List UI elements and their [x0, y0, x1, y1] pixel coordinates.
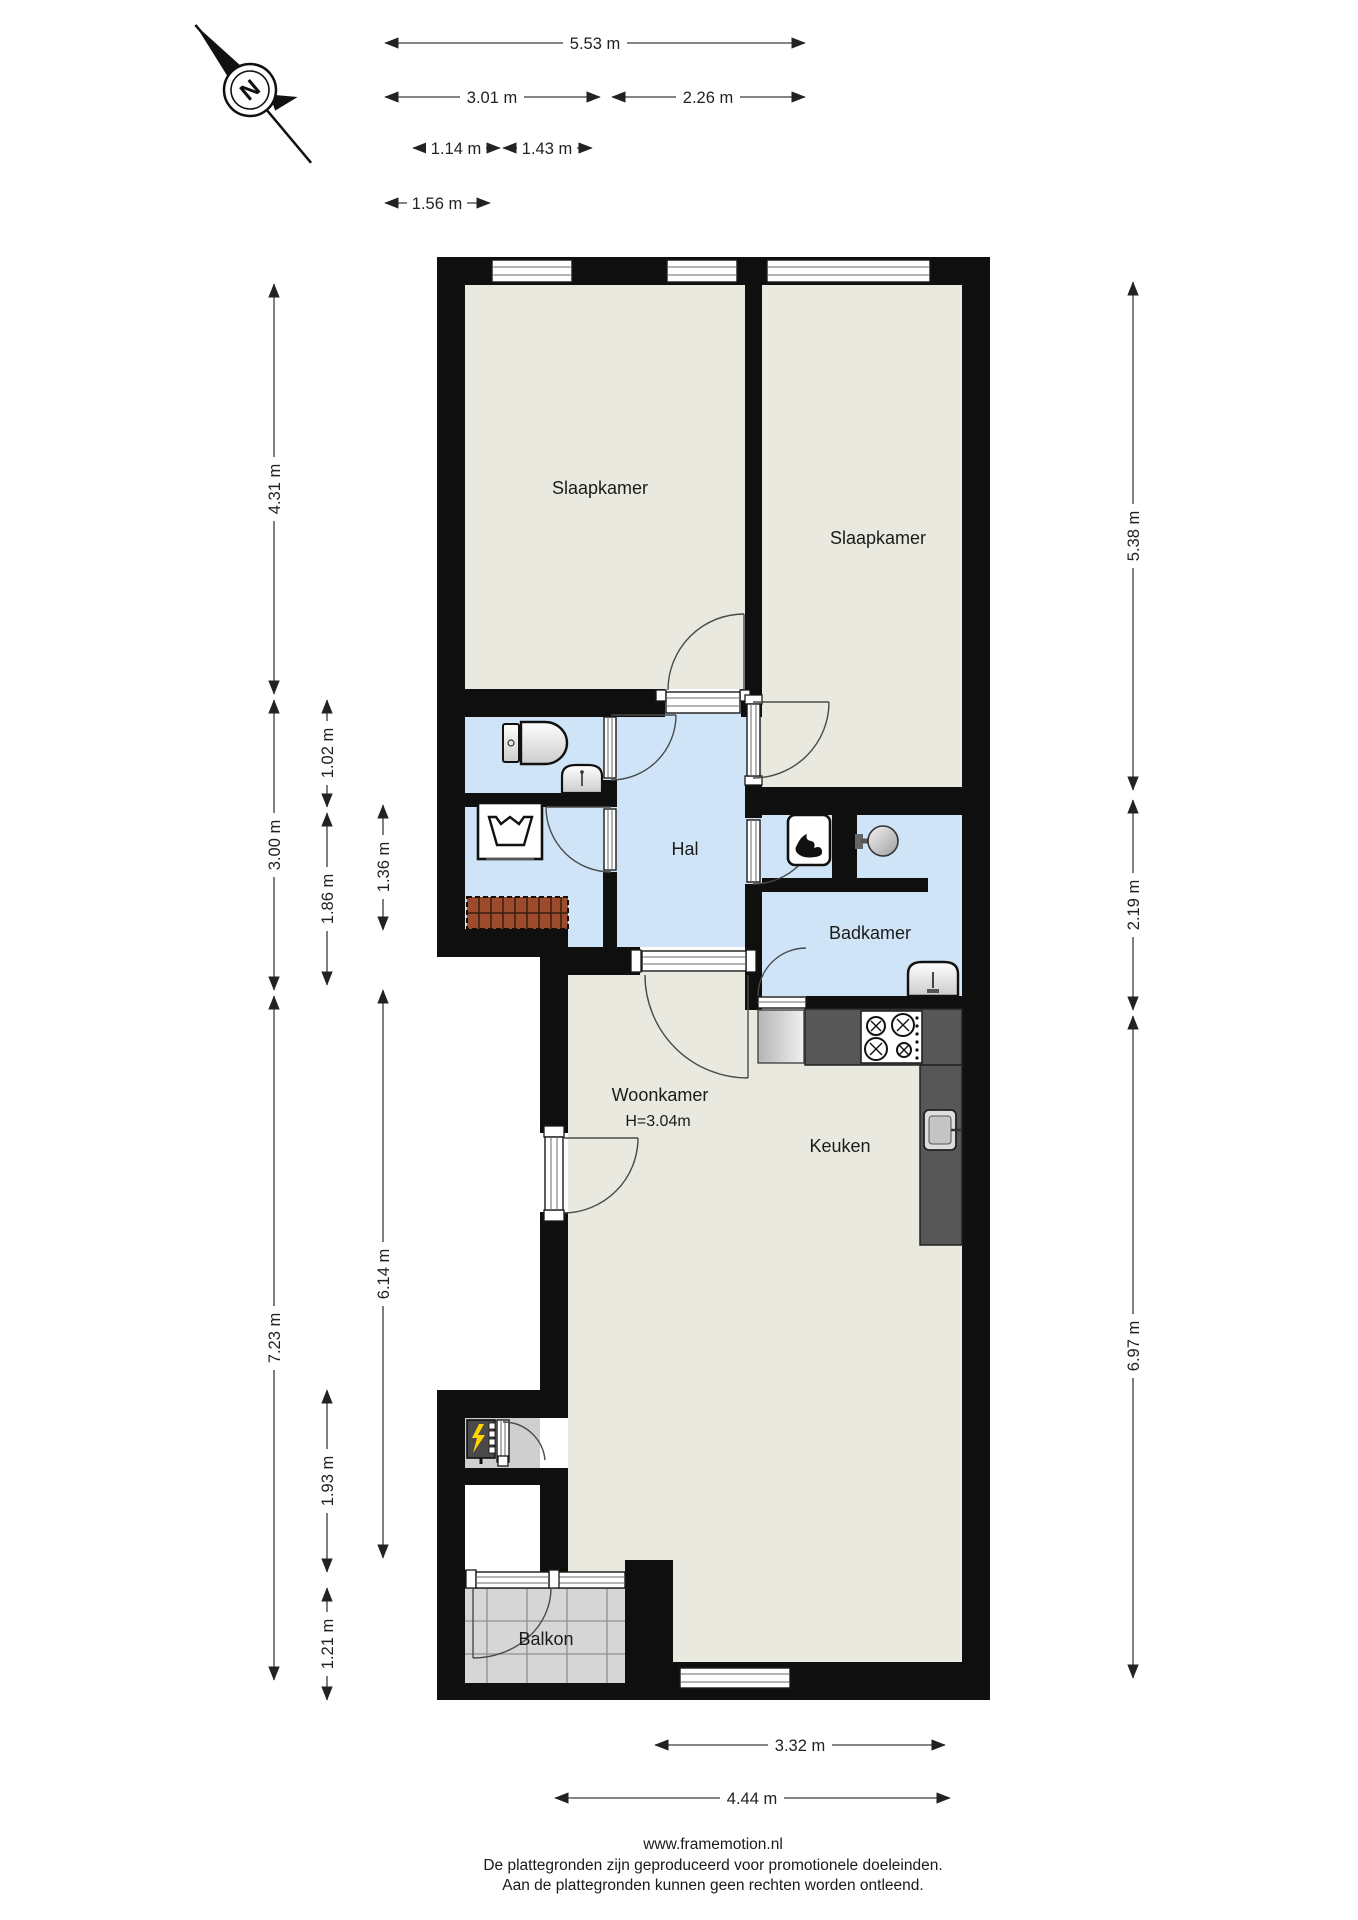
footer-site: www.framemotion.nl [642, 1836, 783, 1853]
svg-text:5.38 m: 5.38 m [1125, 511, 1143, 561]
dim-697: 6.97 m [1123, 1016, 1143, 1678]
dim-156: 1.56 m [385, 193, 490, 213]
compass-icon: N [175, 4, 335, 179]
footer: www.framemotion.nl De plattegronden zijn… [483, 1836, 942, 1894]
dim-186: 1.86 m [317, 813, 337, 985]
hall-floor [603, 702, 762, 947]
svg-text:1.14 m: 1.14 m [431, 140, 481, 158]
dimensions-left: 4.31 m 3.00 m 7.23 m 1.02 m 1.86 m 1.93 … [264, 284, 393, 1700]
svg-text:1.56 m: 1.56 m [412, 195, 462, 213]
bedroom2-label: Slaapkamer [830, 528, 926, 548]
svg-text:2.19 m: 2.19 m [1125, 880, 1143, 930]
floorplan-drawing: Slaapkamer Slaapkamer Hal Badkamer Keuke… [0, 0, 1358, 1920]
living-label: Woonkamer [612, 1085, 709, 1105]
footer-disclaimer-2: Aan de plattegronden kunnen geen rechten… [502, 1877, 923, 1894]
dim-538: 5.38 m [1123, 282, 1143, 790]
dim-143: 1.43 m [503, 138, 592, 158]
window-top-2 [667, 260, 737, 282]
kitchen-sink-icon [924, 1110, 962, 1150]
svg-text:4.44 m: 4.44 m [727, 1790, 777, 1808]
footer-disclaimer-1: De plattegronden zijn geproduceerd voor … [483, 1857, 942, 1874]
kitchen-appliance-icon [758, 1010, 804, 1063]
svg-text:3.01 m: 3.01 m [467, 89, 517, 107]
dim-301: 3.01 m [385, 87, 600, 107]
svg-text:1.86 m: 1.86 m [319, 874, 337, 924]
bathroom-label: Badkamer [829, 923, 911, 943]
svg-text:4.31 m: 4.31 m [266, 464, 284, 514]
dim-553: 5.53 m [385, 33, 805, 53]
kitchen-label: Keuken [809, 1136, 870, 1156]
dimensions-top: 5.53 m 3.01 m 2.26 m 1.14 m 1.43 m 1.56 … [385, 33, 805, 213]
dim-300: 3.00 m [264, 700, 284, 990]
window-top-3 [767, 260, 930, 282]
toilet-sink-icon [562, 765, 602, 793]
window-bottom [680, 1668, 790, 1688]
svg-text:3.00 m: 3.00 m [266, 820, 284, 870]
svg-text:1.43 m: 1.43 m [522, 140, 572, 158]
dimensions-right: 5.38 m 2.19 m 6.97 m [1123, 282, 1143, 1678]
bathroom-sink-icon [908, 962, 958, 996]
dim-614: 6.14 m [373, 990, 393, 1558]
dim-102: 1.02 m [317, 700, 337, 807]
svg-text:6.14 m: 6.14 m [375, 1249, 393, 1299]
svg-text:1.21 m: 1.21 m [319, 1619, 337, 1669]
electric-panel-icon [467, 1420, 495, 1464]
stove-icon [861, 1011, 922, 1063]
toilet-icon [503, 722, 567, 764]
svg-text:5.53 m: 5.53 m [570, 35, 620, 53]
dim-121: 1.21 m [317, 1588, 337, 1700]
bedroom1-label: Slaapkamer [552, 478, 648, 498]
water-heater-icon [788, 815, 830, 865]
floorplan-page: Slaapkamer Slaapkamer Hal Badkamer Keuke… [0, 0, 1358, 1920]
dim-723: 7.23 m [264, 996, 284, 1680]
window-top-1 [492, 260, 572, 282]
dim-226: 2.26 m [612, 87, 805, 107]
dim-444: 4.44 m [555, 1788, 950, 1808]
svg-text:1.36 m: 1.36 m [375, 842, 393, 892]
washing-machine-icon [478, 803, 542, 859]
svg-text:7.23 m: 7.23 m [266, 1313, 284, 1363]
hall-label: Hal [671, 839, 698, 859]
svg-text:1.93 m: 1.93 m [319, 1456, 337, 1506]
dim-136: 1.36 m [373, 805, 393, 930]
kitchen-counter-side [920, 1065, 962, 1245]
dim-114: 1.14 m [413, 138, 500, 158]
dim-332: 3.32 m [655, 1735, 945, 1755]
dimensions-bottom: 3.32 m 4.44 m [555, 1735, 950, 1808]
dim-193: 1.93 m [317, 1390, 337, 1572]
svg-text:2.26 m: 2.26 m [683, 89, 733, 107]
room-floors [465, 285, 962, 1662]
window-balcony [558, 1572, 625, 1588]
svg-text:1.02 m: 1.02 m [319, 728, 337, 778]
dim-219: 2.19 m [1123, 800, 1143, 1010]
svg-text:3.32 m: 3.32 m [775, 1737, 825, 1755]
svg-text:6.97 m: 6.97 m [1125, 1321, 1143, 1371]
dim-431: 4.31 m [264, 284, 284, 694]
stairs-icon [467, 897, 568, 929]
living-height-label: H=3.04m [625, 1113, 690, 1130]
balcony-label: Balkon [518, 1629, 573, 1649]
